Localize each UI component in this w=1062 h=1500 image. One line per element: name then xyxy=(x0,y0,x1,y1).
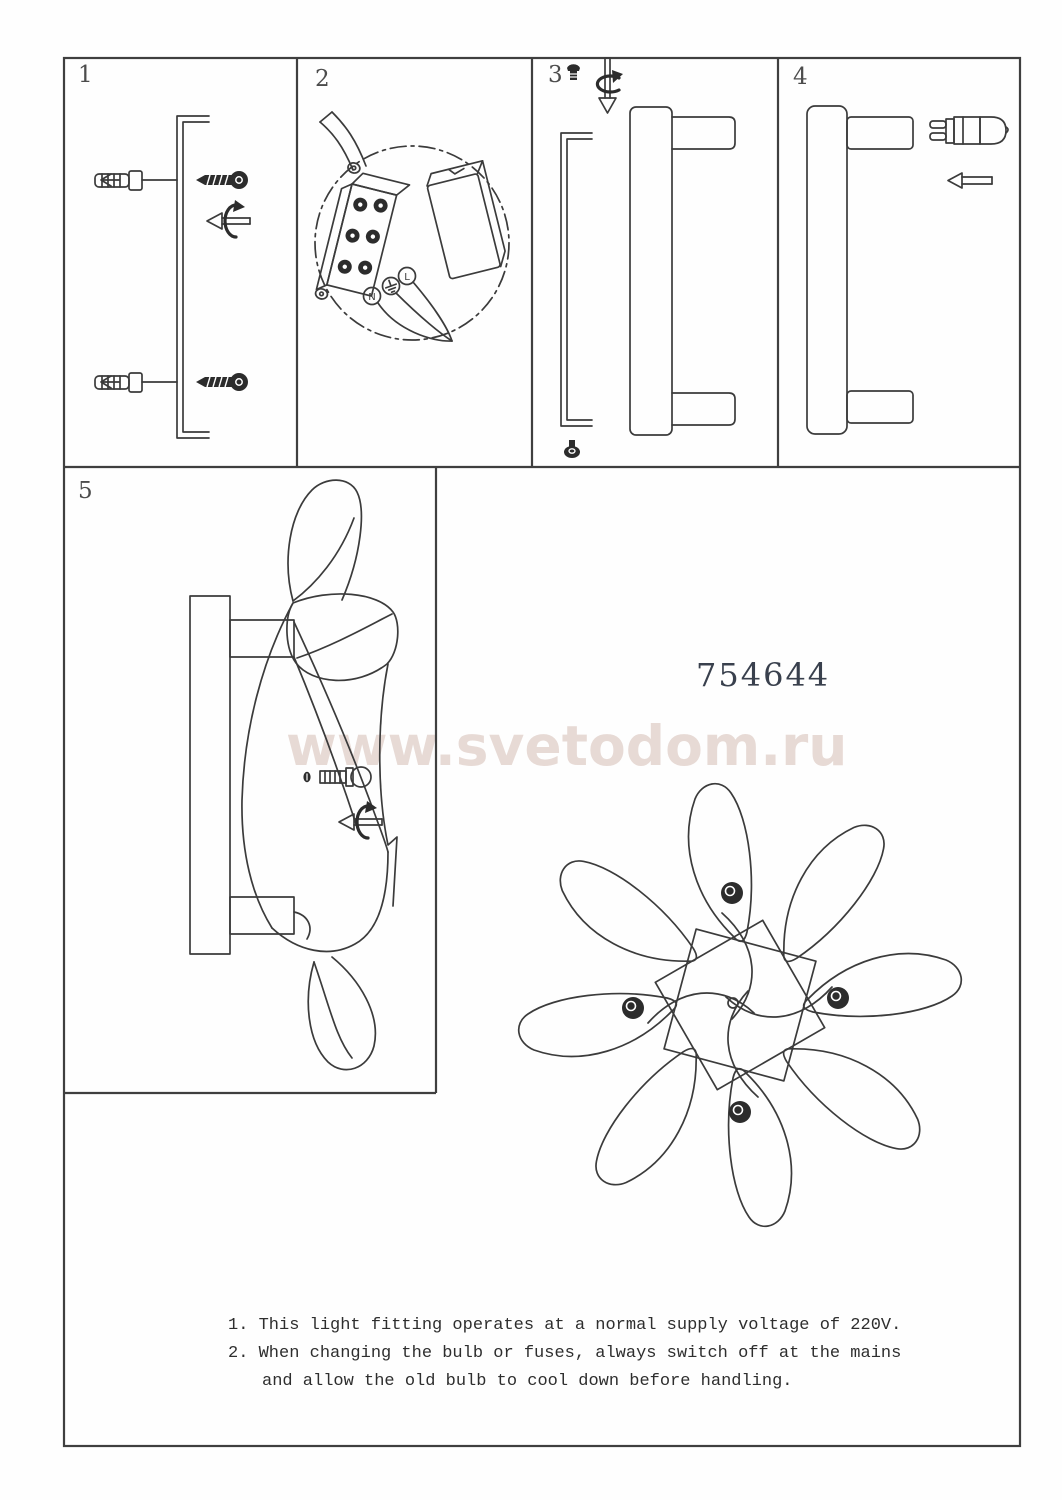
screw-down-rotation-icon xyxy=(597,58,623,113)
note-line-1: 1. This light fitting operates at a norm… xyxy=(228,1312,901,1340)
product-number: 754644 xyxy=(696,656,830,694)
mounting-bracket xyxy=(561,133,592,426)
unscrew-rotation-arrow-icon xyxy=(207,200,250,237)
note-line-2: 2. When changing the bulb or fuses, alwa… xyxy=(228,1340,901,1368)
screw-icon xyxy=(196,373,248,391)
panel4-drawing xyxy=(807,106,1008,434)
screw-icon xyxy=(303,772,310,782)
neutral-label: N xyxy=(368,292,375,303)
unscrew-rotation-arrow-icon xyxy=(339,801,382,838)
panel3-number: 3 xyxy=(548,62,563,88)
wire-designation-labels: N L xyxy=(364,268,453,342)
note-line-3: and allow the old bulb to cool down befo… xyxy=(228,1368,901,1396)
panel5-drawing xyxy=(190,480,398,1070)
screw-icon xyxy=(196,171,248,189)
safety-notes: 1. This light fitting operates at a norm… xyxy=(228,1312,901,1396)
terminal-cover xyxy=(424,161,508,279)
insert-arrow-icon xyxy=(948,173,992,188)
wall-anchor-icon xyxy=(95,373,177,392)
panel3-drawing xyxy=(561,58,735,458)
detail-circle xyxy=(315,146,509,340)
panel2-number: 2 xyxy=(315,66,330,92)
mounting-bracket xyxy=(177,116,209,438)
panel1-drawing xyxy=(95,116,250,438)
screw-icon xyxy=(564,440,580,458)
terminal-screws xyxy=(336,192,389,280)
terminal-block xyxy=(314,161,411,313)
panel4-number: 4 xyxy=(793,64,808,90)
g9-bulb-icon xyxy=(930,117,1008,144)
panel2-drawing: N L xyxy=(314,112,509,341)
lamp-top-view xyxy=(519,784,962,1227)
earth-symbol-icon xyxy=(384,278,398,293)
screw-icon xyxy=(567,64,580,80)
glass-petals xyxy=(519,784,962,1227)
page-border xyxy=(64,58,1020,1446)
panel1-number: 1 xyxy=(78,62,93,88)
fixture-base xyxy=(807,106,913,434)
panel5-number: 5 xyxy=(78,478,93,504)
wall-anchor-icon xyxy=(95,171,177,190)
line-art-layer: N L xyxy=(0,0,1062,1500)
instruction-sheet: www.svetodom.ru xyxy=(0,0,1062,1500)
live-label: L xyxy=(404,272,410,283)
wall-plate xyxy=(190,596,310,954)
fixture-base xyxy=(630,107,735,435)
woven-center-bands xyxy=(648,913,832,1097)
